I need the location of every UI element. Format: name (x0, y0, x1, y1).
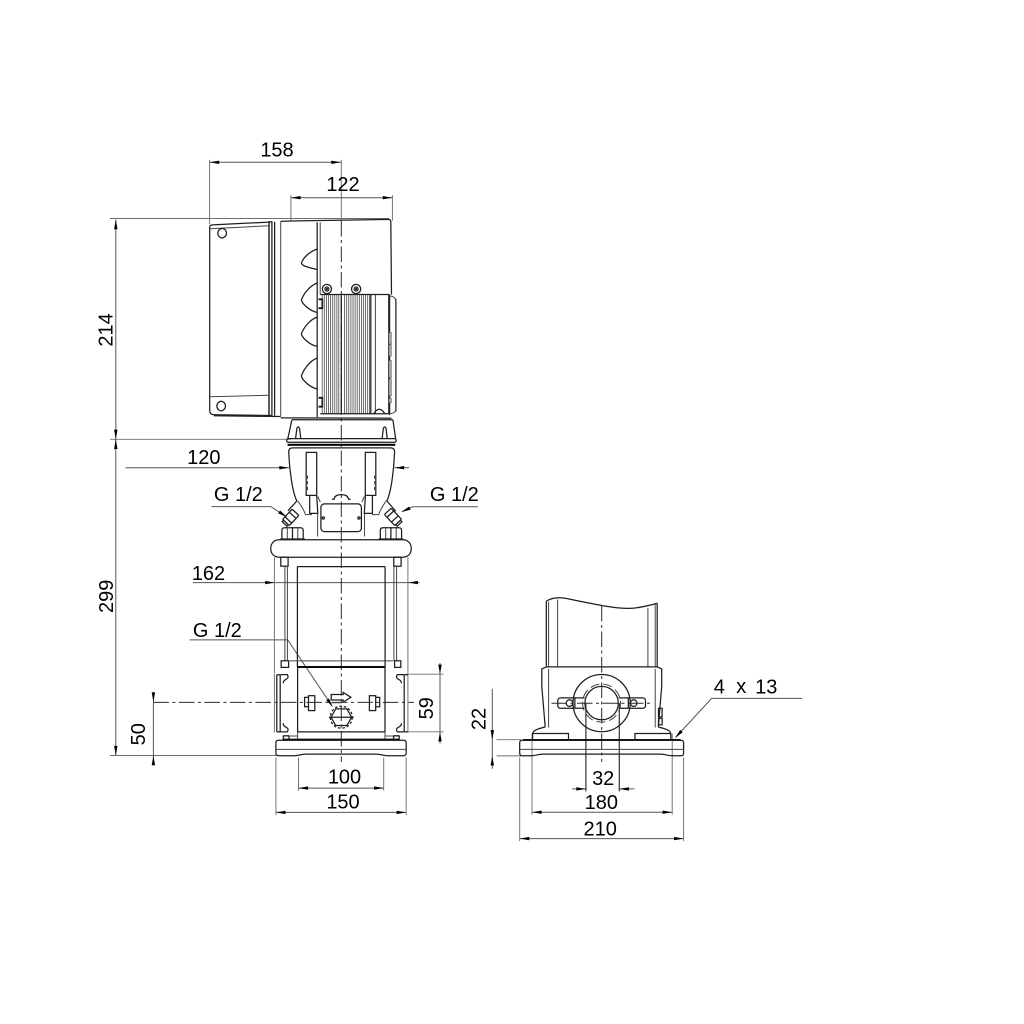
svg-text:214: 214 (96, 313, 118, 346)
svg-text:150: 150 (326, 791, 359, 813)
svg-text:299: 299 (96, 580, 118, 613)
svg-text:13: 13 (755, 676, 777, 698)
svg-text:50: 50 (128, 723, 150, 745)
svg-text:G 1/2: G 1/2 (193, 620, 242, 642)
svg-text:4: 4 (714, 676, 725, 698)
svg-text:158: 158 (260, 140, 293, 162)
svg-text:122: 122 (326, 174, 359, 196)
svg-text:59: 59 (416, 697, 438, 719)
svg-text:G 1/2: G 1/2 (430, 484, 479, 506)
svg-text:180: 180 (585, 792, 618, 814)
svg-text:120: 120 (187, 447, 220, 469)
svg-text:22: 22 (469, 708, 491, 730)
svg-text:x: x (736, 676, 746, 698)
svg-text:G 1/2: G 1/2 (214, 484, 263, 506)
svg-text:100: 100 (328, 767, 361, 789)
svg-text:32: 32 (592, 768, 614, 790)
svg-text:162: 162 (192, 563, 225, 585)
svg-text:210: 210 (584, 818, 617, 840)
